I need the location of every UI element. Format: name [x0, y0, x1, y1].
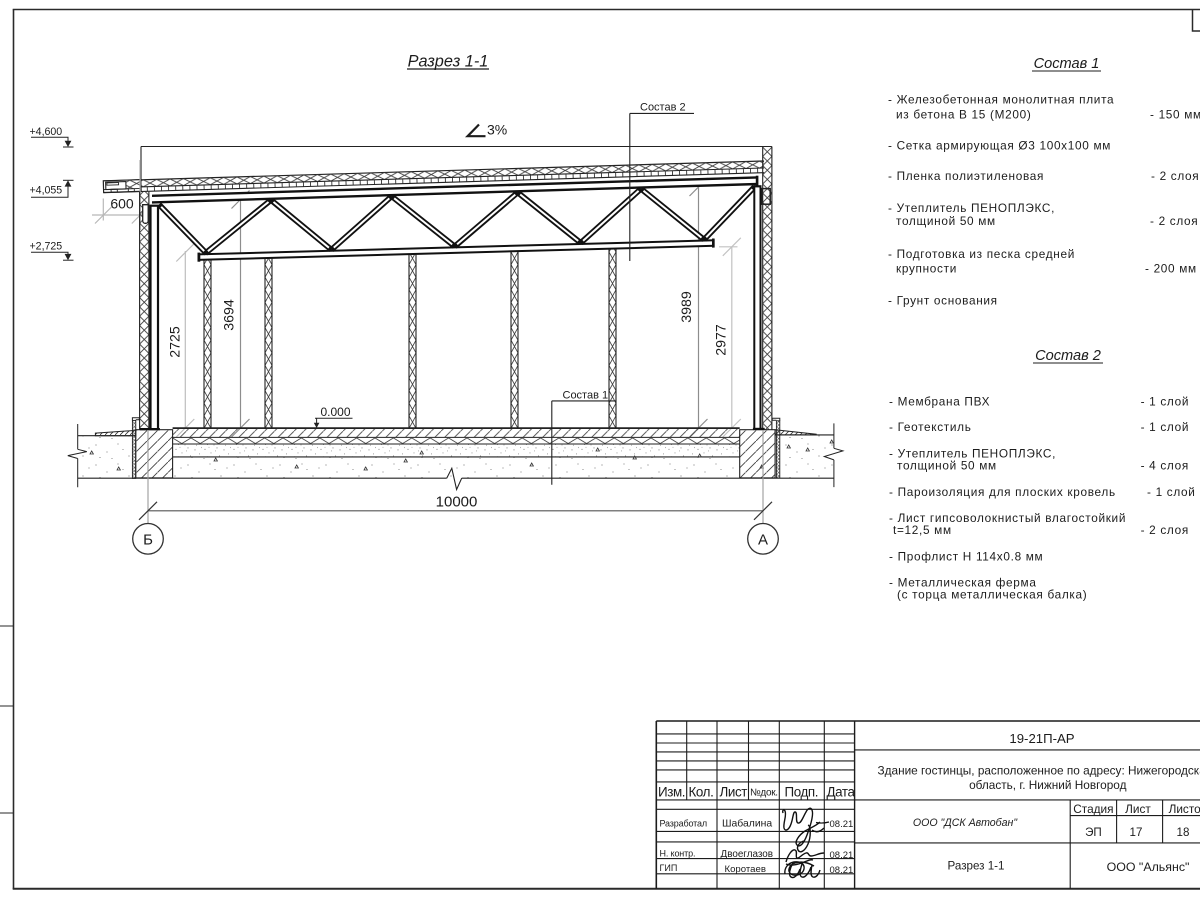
- svg-text:+4,600: +4,600: [30, 126, 63, 138]
- svg-text:Лист: Лист: [1125, 802, 1151, 816]
- svg-text:Двоеглазов: Двоеглазов: [721, 849, 774, 860]
- svg-text:- 1 слой: - 1 слой: [1141, 420, 1190, 434]
- svg-text:3694: 3694: [222, 299, 238, 331]
- svg-text:(с торца металлическая балка): (с торца металлическая балка): [897, 588, 1087, 602]
- svg-text:- 2 слоя: - 2 слоя: [1150, 214, 1198, 228]
- svg-text:- 1 слой: - 1 слой: [1141, 395, 1190, 409]
- svg-text:Коротаев: Коротаев: [725, 864, 766, 875]
- svg-text:Дата: Дата: [827, 785, 856, 800]
- svg-text:08.21: 08.21: [830, 819, 854, 830]
- svg-text:ЭП: ЭП: [1085, 826, 1102, 839]
- svg-text:600: 600: [110, 196, 134, 212]
- svg-text:- Железобетонная монолитная п: - Железобетонная монолитная плита: [888, 93, 1114, 107]
- svg-text:Лист: Лист: [720, 785, 748, 800]
- svg-text:из бетона В 15 (М200): из бетона В 15 (М200): [896, 108, 1031, 122]
- svg-text:Изм.: Изм.: [658, 785, 685, 800]
- svg-text:Листов: Листов: [1169, 802, 1200, 816]
- svg-text:область, г. Нижний Новгород: область, г. Нижний Новгород: [969, 778, 1126, 792]
- svg-text:- 2 слоя: - 2 слоя: [1141, 523, 1189, 537]
- svg-text:ООО "ДСК Автобан": ООО "ДСК Автобан": [913, 817, 1018, 829]
- svg-text:Состав 2: Состав 2: [640, 102, 686, 114]
- svg-text:Здание гостинцы, расположенное: Здание гостинцы, расположенное по адресу…: [878, 763, 1200, 777]
- svg-text:- 4 слоя: - 4 слоя: [1141, 458, 1189, 472]
- svg-text:толщиной 50 мм: толщиной 50 мм: [897, 458, 997, 472]
- svg-text:крупности: крупности: [896, 262, 957, 276]
- svg-text:3%: 3%: [487, 122, 507, 138]
- svg-text:10000: 10000: [436, 494, 478, 511]
- svg-text:0.000: 0.000: [321, 405, 351, 419]
- svg-text:Разрез 1-1: Разрез 1-1: [948, 860, 1005, 873]
- svg-text:ГИП: ГИП: [660, 863, 678, 873]
- svg-text:- 1 слой: - 1 слой: [1147, 485, 1196, 499]
- svg-text:- 2 слоя: - 2 слоя: [1151, 169, 1199, 183]
- svg-text:08.21: 08.21: [830, 865, 854, 876]
- svg-text:Состав 2: Состав 2: [1035, 348, 1101, 364]
- svg-text:Состав 1: Состав 1: [563, 389, 609, 401]
- svg-text:Разработал: Разработал: [660, 819, 708, 829]
- svg-text:18: 18: [1177, 826, 1190, 839]
- svg-text:А: А: [758, 531, 768, 548]
- svg-text:2725: 2725: [168, 326, 184, 358]
- svg-text:Б: Б: [143, 531, 153, 548]
- svg-text:19-21П-АР: 19-21П-АР: [1009, 731, 1074, 746]
- svg-text:17: 17: [1130, 826, 1143, 839]
- svg-text:- Пленка полиэтиленовая: - Пленка полиэтиленовая: [888, 169, 1044, 183]
- svg-text:Подп.: Подп.: [785, 785, 819, 800]
- svg-text:t=12,5 мм: t=12,5 мм: [893, 523, 952, 537]
- svg-text:Шабалина: Шабалина: [722, 818, 772, 830]
- svg-text:- Мембрана ПВХ: - Мембрана ПВХ: [889, 395, 990, 409]
- svg-text:- 200 мм: - 200 мм: [1145, 262, 1197, 276]
- svg-text:- Профлист Н 114х0.8 мм: - Профлист Н 114х0.8 мм: [889, 550, 1043, 564]
- svg-text:- Пароизоляция для плоских кро: - Пароизоляция для плоских кровель: [889, 485, 1116, 499]
- svg-text:- Утеплитель ПЕНОПЛЭКС,: - Утеплитель ПЕНОПЛЭКС,: [888, 201, 1055, 215]
- svg-text:2977: 2977: [714, 324, 730, 356]
- svg-text:3989: 3989: [679, 291, 695, 323]
- svg-text:+2,725: +2,725: [30, 241, 63, 253]
- svg-text:- 150 мм: - 150 мм: [1150, 108, 1200, 122]
- svg-text:Разрез 1-1: Разрез 1-1: [408, 53, 489, 71]
- svg-text:08.21: 08.21: [830, 850, 854, 861]
- svg-text:Кол.: Кол.: [689, 785, 714, 800]
- svg-text:- Геотекстиль: - Геотекстиль: [889, 420, 972, 434]
- svg-text:Н. контр.: Н. контр.: [660, 848, 696, 858]
- svg-text:Состав 1: Состав 1: [1034, 56, 1100, 72]
- svg-text:- Подготовка из песка средней: - Подготовка из песка средней: [888, 247, 1075, 261]
- svg-text:Стадия: Стадия: [1073, 802, 1113, 816]
- svg-text:№док.: №док.: [750, 788, 778, 799]
- svg-text:+4,055: +4,055: [30, 185, 63, 197]
- svg-text:толщиной 50 мм: толщиной 50 мм: [896, 214, 996, 228]
- svg-text:- Сетка армирующая Ø3 100х100: - Сетка армирующая Ø3 100х100 мм: [888, 139, 1111, 153]
- svg-text:- Грунт основания: - Грунт основания: [888, 293, 998, 307]
- svg-text:ООО "Альянс": ООО "Альянс": [1107, 860, 1190, 874]
